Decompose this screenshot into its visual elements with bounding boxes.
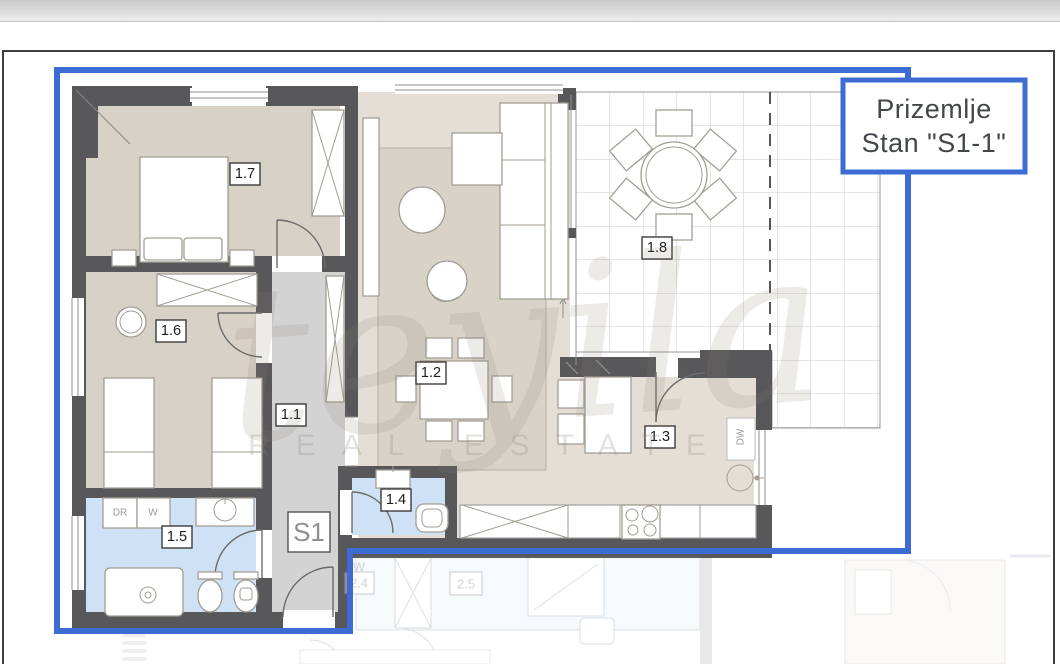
- bathtub: [105, 568, 183, 616]
- neighbor-bedroom: [845, 556, 1050, 664]
- window-living-top: [395, 82, 563, 94]
- bidet: [234, 572, 258, 612]
- toilet: [198, 572, 222, 612]
- svg-text:1.7: 1.7: [235, 166, 255, 182]
- neighbor-label-25: 2.5: [450, 572, 482, 595]
- svg-text:1.6: 1.6: [161, 323, 181, 339]
- svg-text:2.5: 2.5: [457, 577, 475, 592]
- watermark: teyila REAL ESTATE: [216, 200, 833, 492]
- svg-text:1.5: 1.5: [167, 529, 187, 545]
- screenshot-root: W 2.4 2.5 1.7 1.6 1.1: [0, 0, 1060, 664]
- label-wc: 1.4: [381, 489, 411, 511]
- svg-text:S1: S1: [293, 517, 325, 547]
- floor-plan: W 2.4 2.5 1.7 1.6 1.1: [0, 0, 1060, 664]
- title-line2: Stan "S1-1": [862, 128, 1007, 158]
- window-top-bedroom1: [190, 88, 268, 102]
- dryer-label: DR: [113, 508, 127, 519]
- window-left-bathroom: [66, 516, 84, 590]
- watermark-subtext: REAL ESTATE: [248, 429, 732, 462]
- label-bedroom1: 1.7: [230, 163, 260, 185]
- wc-toilet: [416, 504, 448, 532]
- label-bathroom: 1.5: [162, 526, 192, 548]
- window-left-bedroom2: [66, 298, 84, 396]
- svg-text:1.4: 1.4: [386, 492, 406, 508]
- label-bedroom2: 1.6: [156, 320, 186, 342]
- washer-label: W: [148, 508, 158, 519]
- stove: [622, 505, 660, 539]
- title-box: Prizemlje Stan "S1-1": [843, 80, 1025, 172]
- title-line1: Prizemlje: [876, 94, 992, 124]
- label-unit: S1: [288, 512, 330, 552]
- kitchen-counter: [460, 505, 756, 538]
- neighbor-stairs: [122, 633, 146, 661]
